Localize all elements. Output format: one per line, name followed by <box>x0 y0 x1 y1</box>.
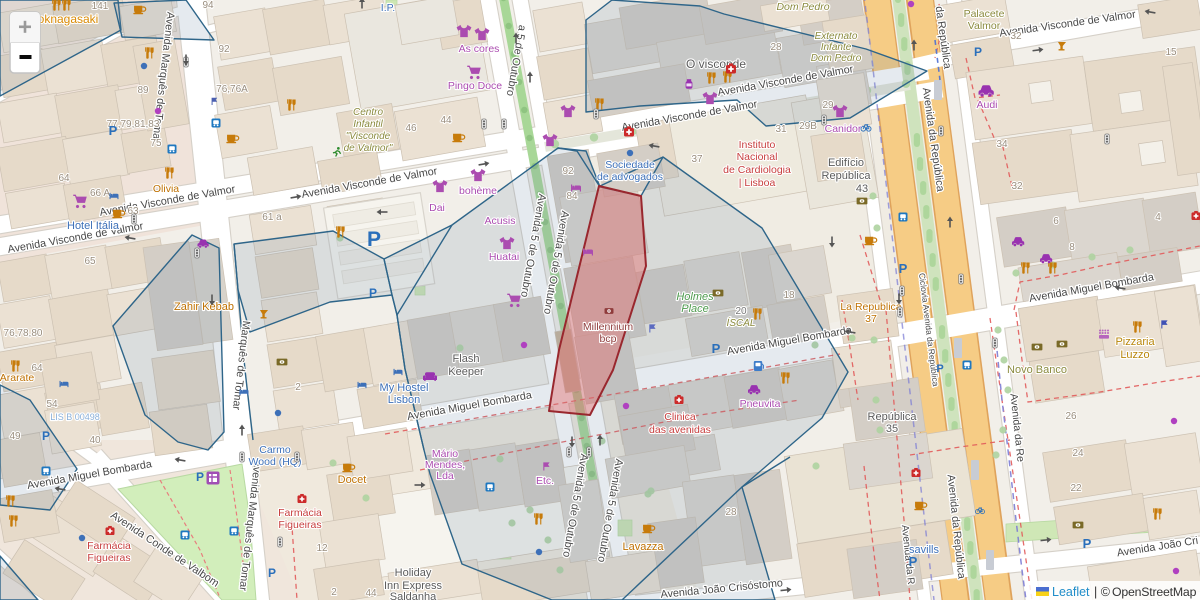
svg-text:Sociedade: Sociedade <box>605 159 655 171</box>
svg-text:República: República <box>868 411 918 423</box>
svg-text:Figueiras: Figueiras <box>87 552 130 564</box>
svg-text:Place: Place <box>681 303 709 315</box>
svg-text:18: 18 <box>783 290 795 301</box>
svg-text:Ararate: Ararate <box>0 372 34 384</box>
svg-text:P: P <box>936 363 943 375</box>
svg-text:92: 92 <box>562 166 574 177</box>
svg-text:Lda: Lda <box>436 470 454 482</box>
svg-text:65: 65 <box>84 256 96 267</box>
svg-text:Externato: Externato <box>815 31 858 42</box>
svg-text:Holmes: Holmes <box>676 291 714 303</box>
svg-text:P: P <box>268 566 276 580</box>
svg-text:31: 31 <box>775 124 787 135</box>
svg-text:Docet: Docet <box>338 474 367 486</box>
svg-text:P: P <box>369 286 377 300</box>
svg-text:75: 75 <box>150 138 162 149</box>
svg-text:32: 32 <box>1011 181 1023 192</box>
svg-text:Valmor: Valmor <box>968 20 1001 32</box>
svg-text:44: 44 <box>365 588 377 599</box>
svg-text:Farmácia: Farmácia <box>87 540 131 552</box>
svg-text:ÍSCAL: ÍSCAL <box>727 316 756 329</box>
svg-text:Clinica: Clinica <box>664 411 696 423</box>
svg-text:6: 6 <box>1053 216 1059 227</box>
svg-text:34: 34 <box>996 139 1008 150</box>
svg-text:La Republica: La Republica <box>840 301 901 313</box>
svg-text:O visconde: O visconde <box>686 57 746 71</box>
svg-text:P: P <box>974 45 982 59</box>
svg-text:28: 28 <box>725 507 737 518</box>
svg-text:oknagasaki: oknagasaki <box>38 12 99 26</box>
svg-text:P: P <box>196 470 204 484</box>
svg-text:Centro: Centro <box>353 107 383 118</box>
svg-text:76,78,80: 76,78,80 <box>4 328 43 339</box>
svg-text:32: 32 <box>1010 31 1022 42</box>
svg-text:66 A: 66 A <box>90 188 110 199</box>
svg-text:Keeper: Keeper <box>448 366 484 378</box>
svg-text:Huatai: Huatai <box>489 251 519 263</box>
svg-text:Pingo Doce: Pingo Doce <box>448 80 502 92</box>
svg-text:2: 2 <box>295 382 301 393</box>
svg-text:Saldanha: Saldanha <box>390 591 437 600</box>
svg-text:República: República <box>822 170 872 182</box>
svg-text:Dai: Dai <box>429 202 445 214</box>
svg-text:40: 40 <box>89 435 101 446</box>
svg-text:bohème: bohème <box>459 185 497 197</box>
svg-text:Zahir Kebab: Zahir Kebab <box>174 301 234 313</box>
svg-text:8: 8 <box>1069 242 1075 253</box>
svg-text:49: 49 <box>9 431 21 442</box>
svg-text:Palacete: Palacete <box>964 8 1005 20</box>
svg-text:LIS B 00498: LIS B 00498 <box>50 412 100 422</box>
svg-text:61 a: 61 a <box>262 212 282 223</box>
svg-text:Infante: Infante <box>821 42 852 53</box>
svg-text:46: 46 <box>405 123 417 134</box>
svg-text:26: 26 <box>1065 411 1077 422</box>
svg-text:89: 89 <box>137 85 149 96</box>
svg-text:Lisbon: Lisbon <box>388 394 420 406</box>
svg-text:24: 24 <box>1072 448 1084 459</box>
svg-text:Olivia: Olivia <box>153 183 179 195</box>
svg-text:37: 37 <box>691 154 703 165</box>
svg-text:Canidor: Canidor <box>825 123 862 135</box>
svg-text:Carmo: Carmo <box>259 444 291 456</box>
svg-text:20: 20 <box>735 306 747 317</box>
svg-text:37: 37 <box>865 313 877 325</box>
svg-text:28: 28 <box>770 42 782 53</box>
svg-text:12: 12 <box>316 543 328 554</box>
svg-text:OpenStreetMap: OpenStreetMap <box>1112 585 1197 599</box>
svg-text:de Cardiologia: de Cardiologia <box>723 164 791 176</box>
svg-text:29B: 29B <box>799 121 817 132</box>
svg-text:4: 4 <box>1155 212 1161 223</box>
svg-text:76,76A: 76,76A <box>216 84 248 95</box>
svg-text:Holiday: Holiday <box>395 567 432 579</box>
svg-text:22: 22 <box>1070 483 1082 494</box>
svg-text:P: P <box>42 429 50 443</box>
svg-text:64: 64 <box>58 173 70 184</box>
svg-text:43: 43 <box>856 183 868 195</box>
svg-text:de Valmor": de Valmor" <box>344 143 393 154</box>
svg-text:P: P <box>899 261 908 276</box>
svg-text:35: 35 <box>886 423 898 435</box>
svg-text:Millennium: Millennium <box>583 321 633 333</box>
svg-text:das avenidas: das avenidas <box>649 424 711 436</box>
svg-text:Dom Pedro: Dom Pedro <box>776 1 829 13</box>
svg-text:Novo Banco: Novo Banco <box>1007 364 1067 376</box>
svg-text:Infantil: Infantil <box>353 119 383 130</box>
svg-text:Pneuvita: Pneuvita <box>740 398 781 410</box>
svg-text:P: P <box>109 123 118 138</box>
svg-text:Flash: Flash <box>453 353 480 365</box>
svg-text:P: P <box>1083 536 1092 551</box>
svg-text:Edifício: Edifício <box>828 157 864 169</box>
svg-text:Lavazza: Lavazza <box>623 541 665 553</box>
svg-text:64: 64 <box>31 363 43 374</box>
svg-text:44: 44 <box>440 115 452 126</box>
svg-text:Farmácia: Farmácia <box>278 507 322 519</box>
svg-text:Hotel Itália: Hotel Itália <box>67 220 120 232</box>
svg-text:54: 54 <box>46 399 58 410</box>
svg-text:My Hostel: My Hostel <box>380 382 429 394</box>
svg-text:Wood (HQ): Wood (HQ) <box>249 456 302 468</box>
svg-text:Figueiras: Figueiras <box>278 519 321 531</box>
svg-text:141: 141 <box>92 1 109 12</box>
svg-text:I.P.: I.P. <box>381 2 395 14</box>
svg-text:P: P <box>367 228 381 251</box>
svg-text:Etc.: Etc. <box>536 475 554 487</box>
svg-text:Luzzo: Luzzo <box>1120 349 1149 361</box>
svg-text:| ©: | © <box>1094 585 1111 599</box>
svg-text:Pizzaria: Pizzaria <box>1115 336 1155 348</box>
svg-text:15: 15 <box>1165 47 1177 58</box>
svg-text:bcp: bcp <box>600 333 617 345</box>
svg-text:92: 92 <box>218 44 230 55</box>
svg-text:Dom Pedro: Dom Pedro <box>811 53 862 64</box>
svg-text:As cores: As cores <box>459 43 500 55</box>
svg-text:P: P <box>909 554 918 569</box>
svg-text:29: 29 <box>822 100 834 111</box>
svg-text:de advogados: de advogados <box>597 171 663 183</box>
svg-text:Acusis: Acusis <box>485 215 516 227</box>
svg-text:94: 94 <box>202 0 214 11</box>
svg-text:P: P <box>712 341 721 356</box>
svg-text:84: 84 <box>566 191 578 202</box>
svg-text:"Visconde: "Visconde <box>346 131 391 142</box>
svg-text:Instituto: Instituto <box>739 139 776 151</box>
svg-text:| Lisboa: | Lisboa <box>739 177 776 189</box>
svg-text:2: 2 <box>331 587 337 598</box>
svg-text:Audi: Audi <box>976 99 997 111</box>
svg-text:Nacional: Nacional <box>737 151 778 163</box>
svg-text:Leaflet: Leaflet <box>1052 585 1090 599</box>
